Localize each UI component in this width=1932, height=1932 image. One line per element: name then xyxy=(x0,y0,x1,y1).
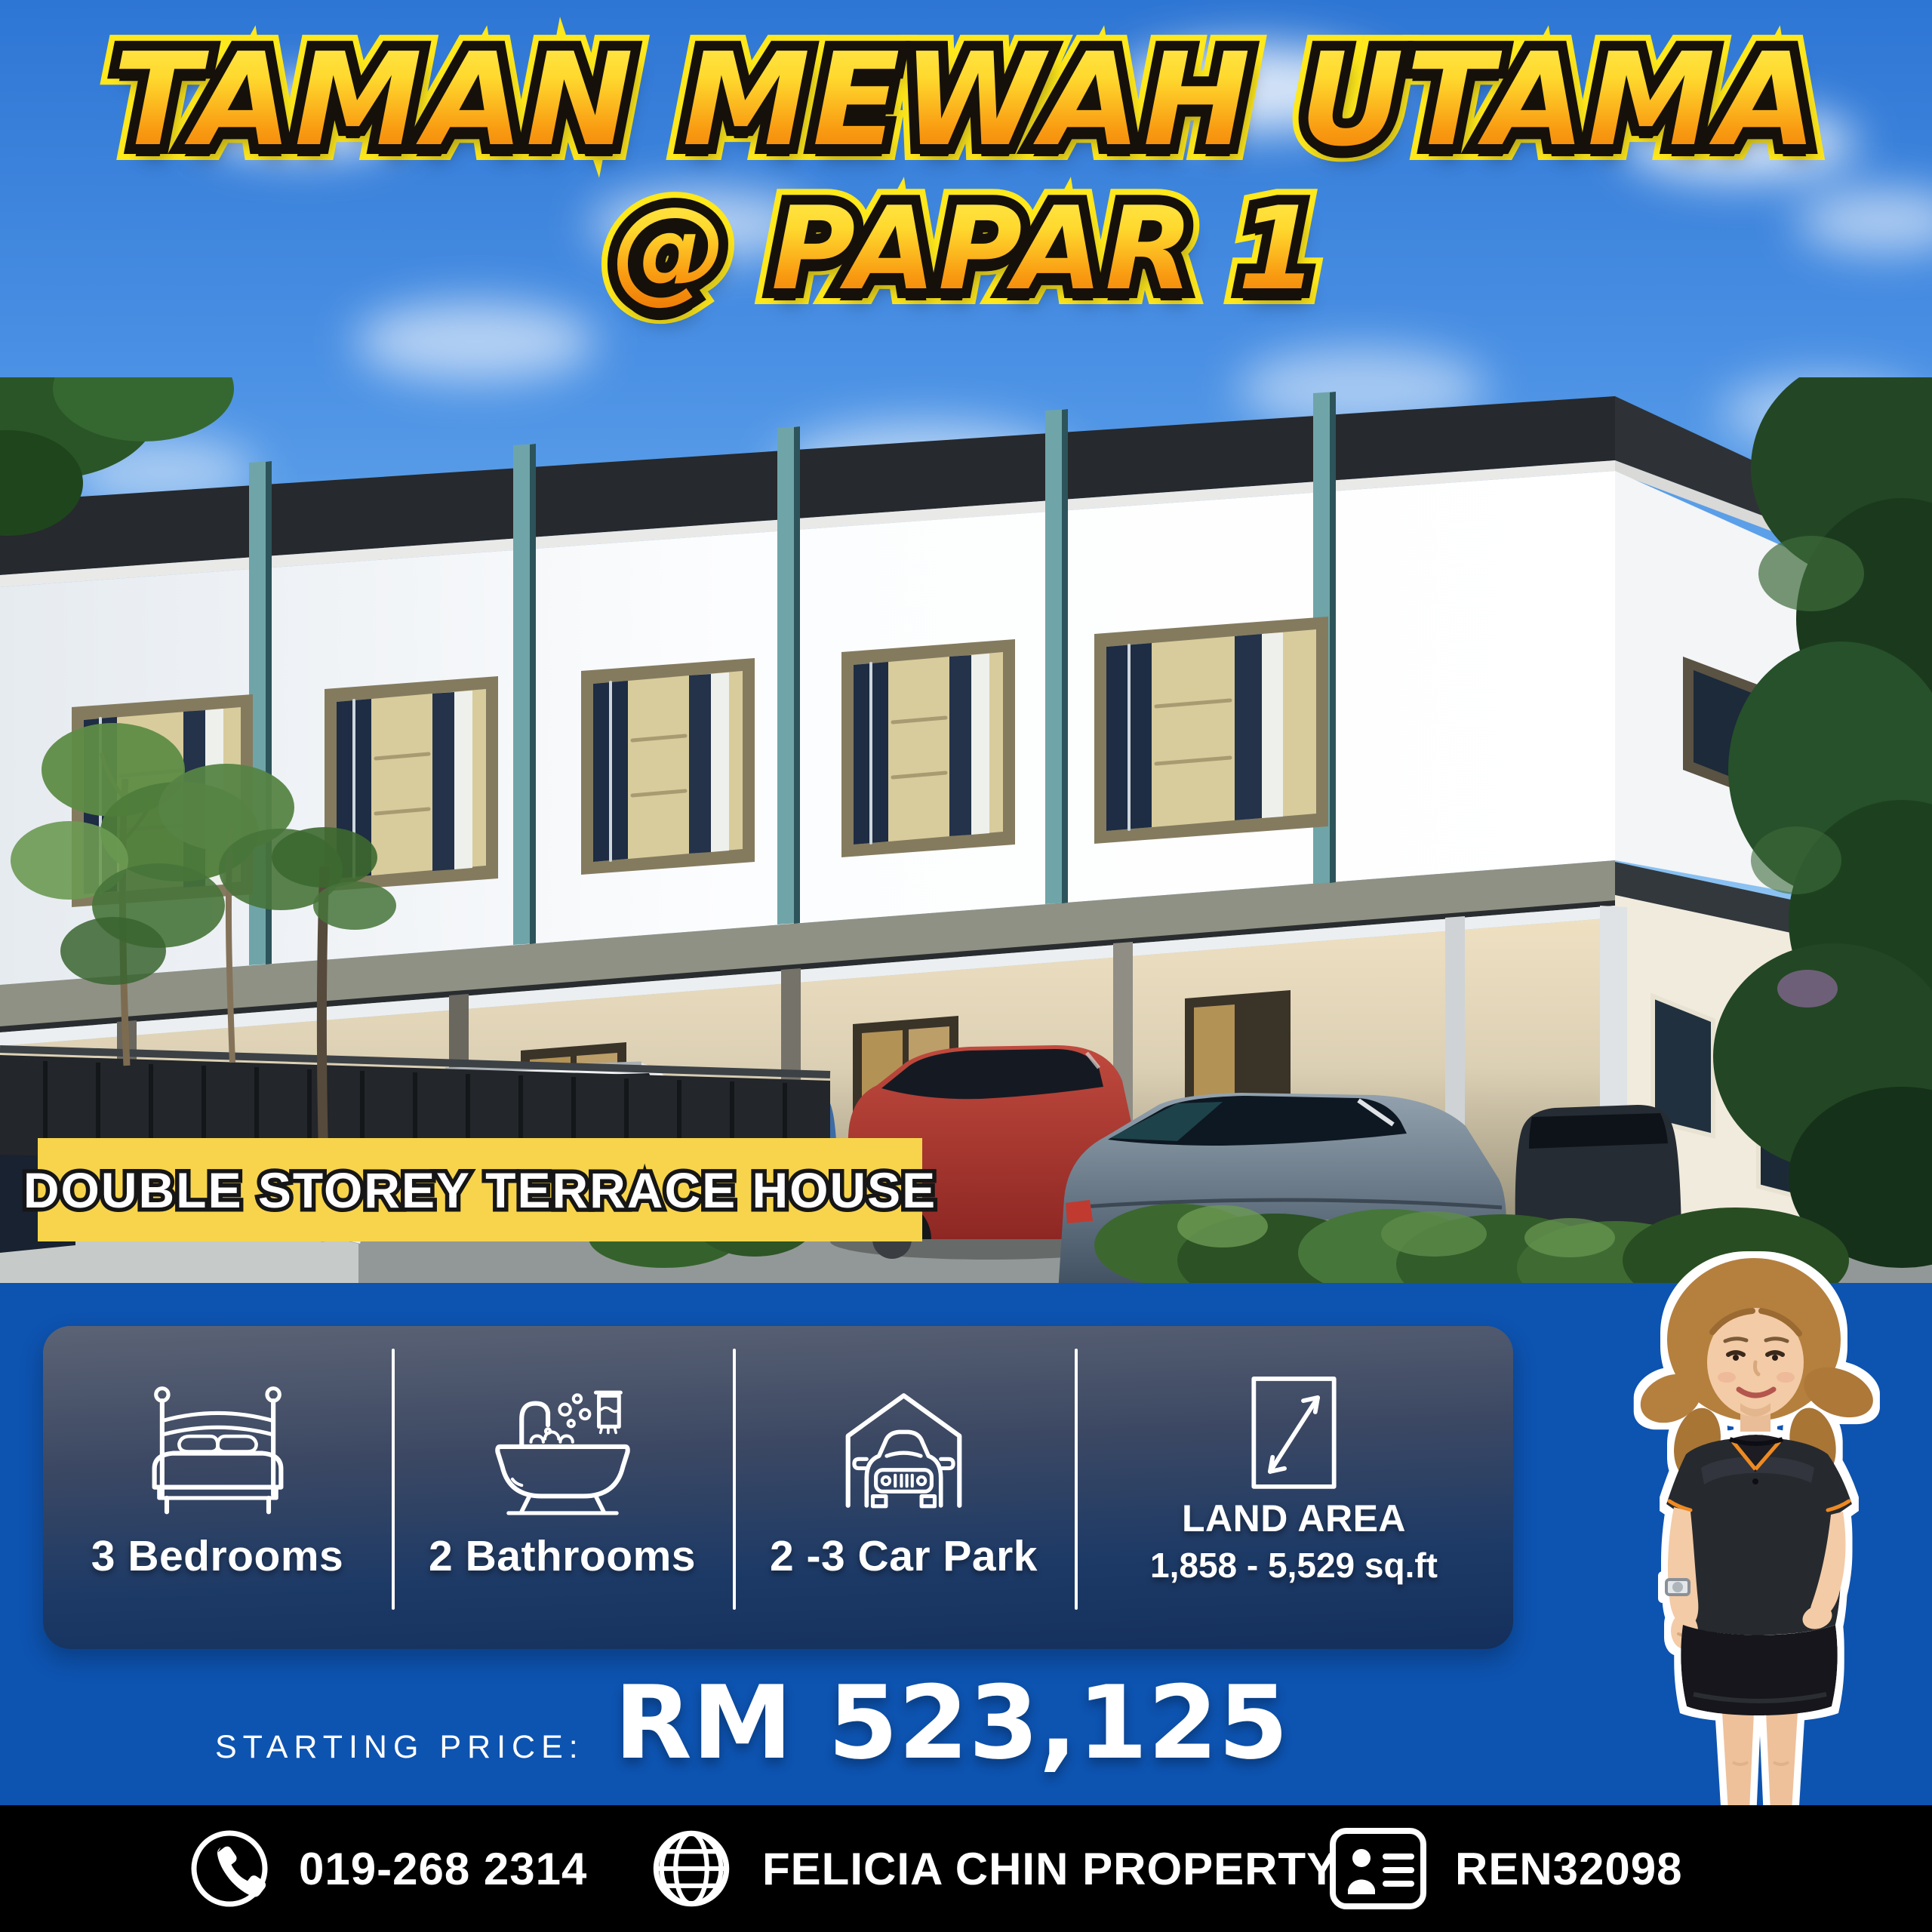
bed-icon xyxy=(133,1370,303,1521)
footer-bar: 019-268 2314 FELICIA CHIN PROPERTY xyxy=(0,1805,1932,1932)
price-label: STARTING PRICE: xyxy=(215,1729,584,1766)
feature-car-park: 2 -3 Car Park xyxy=(733,1326,1075,1649)
feature-label: LAND AREA xyxy=(1182,1497,1406,1540)
project-title: TAMAN MEWAH UTAMA TAMAN MEWAH UTAMA TAMA… xyxy=(0,23,1932,319)
footer-ren: REN32098 xyxy=(1328,1826,1683,1911)
bathtub-icon xyxy=(481,1370,644,1521)
project-title-line-2: @ PAPAR 1 @ PAPAR 1 @ PAPAR 1 xyxy=(0,179,1932,318)
feature-sublabel: 1,858 - 5,529 sq.ft xyxy=(1150,1545,1438,1586)
ren-number: REN32098 xyxy=(1455,1843,1683,1895)
feature-bathrooms: 2 Bathrooms xyxy=(392,1326,733,1649)
feature-bedrooms: 3 Bedrooms xyxy=(43,1326,392,1649)
house-type-label: DOUBLE STOREY TERRACE HOUSE DOUBLE STORE… xyxy=(23,1161,937,1219)
agency-name: FELICIA CHIN PROPERTY xyxy=(762,1843,1337,1895)
globe-icon xyxy=(648,1825,735,1912)
property-flyer: TAMAN MEWAH UTAMA TAMAN MEWAH UTAMA TAMA… xyxy=(0,0,1932,1932)
footer-phone: 019-268 2314 xyxy=(187,1826,587,1911)
agent-photo-cutout xyxy=(1573,1241,1932,1812)
features-panel: 3 Bedrooms xyxy=(43,1326,1513,1649)
phone-number: 019-268 2314 xyxy=(299,1843,587,1895)
feature-label: 2 -3 Car Park xyxy=(770,1531,1038,1581)
feature-label: 3 Bedrooms xyxy=(91,1531,343,1581)
car-park-icon xyxy=(826,1370,981,1521)
phone-icon xyxy=(187,1826,272,1911)
house-type-banner: DOUBLE STOREY TERRACE HOUSE DOUBLE STORE… xyxy=(38,1138,922,1241)
feature-label: 2 Bathrooms xyxy=(429,1531,696,1581)
price-row: STARTING PRICE: RM 523,125 xyxy=(215,1664,1241,1782)
project-title-line-1: TAMAN MEWAH UTAMA TAMAN MEWAH UTAMA TAMA… xyxy=(0,23,1932,179)
footer-agency: FELICIA CHIN PROPERTY xyxy=(648,1825,1337,1912)
price-value: RM 523,125 xyxy=(614,1664,1289,1782)
land-area-icon xyxy=(1243,1373,1345,1494)
feature-land-area: LAND AREA 1,858 - 5,529 sq.ft xyxy=(1075,1326,1513,1649)
id-card-icon xyxy=(1328,1826,1428,1911)
